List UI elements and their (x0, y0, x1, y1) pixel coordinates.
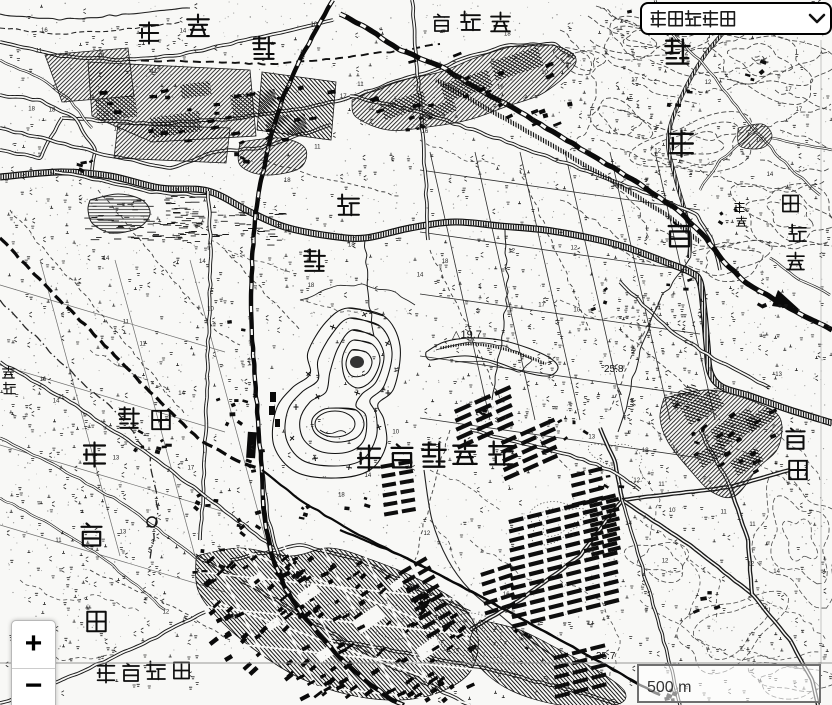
svg-text:14: 14 (435, 616, 442, 622)
svg-text:14: 14 (767, 172, 774, 178)
svg-text:11: 11 (314, 144, 321, 150)
svg-text:11: 11 (58, 394, 65, 400)
svg-text:10: 10 (573, 308, 580, 314)
svg-text:18: 18 (284, 178, 291, 184)
svg-text:18: 18 (504, 31, 511, 37)
svg-text:11: 11 (368, 106, 375, 112)
svg-text:10: 10 (541, 70, 548, 76)
svg-text:13: 13 (231, 615, 238, 621)
svg-text:10: 10 (756, 138, 763, 144)
svg-text:35.7: 35.7 (596, 651, 616, 662)
svg-text:12: 12 (748, 561, 755, 567)
svg-text:17: 17 (538, 302, 545, 308)
svg-text:10: 10 (392, 429, 399, 435)
svg-text:11: 11 (140, 341, 147, 347)
svg-text:△19.7: △19.7 (452, 329, 482, 341)
svg-text:17: 17 (393, 368, 400, 374)
svg-text:18: 18 (642, 448, 649, 454)
svg-text:12: 12 (508, 248, 515, 254)
svg-text:12: 12 (424, 531, 431, 537)
svg-text:11: 11 (355, 563, 362, 569)
svg-text:13: 13 (113, 456, 120, 462)
svg-text:10: 10 (311, 22, 318, 28)
svg-text:16: 16 (503, 592, 510, 598)
svg-text:18: 18 (28, 107, 35, 113)
svg-text:25.8: 25.8 (604, 364, 624, 375)
svg-text:18: 18 (308, 283, 315, 289)
svg-text:11: 11 (123, 319, 130, 325)
svg-text:13: 13 (775, 372, 782, 378)
svg-text:14: 14 (417, 273, 424, 279)
svg-text:13: 13 (588, 435, 595, 441)
svg-text:12: 12 (633, 478, 640, 484)
svg-text:18: 18 (442, 259, 449, 265)
svg-text:16: 16 (40, 377, 47, 383)
svg-text:12: 12 (163, 610, 170, 616)
svg-text:12: 12 (654, 148, 661, 154)
svg-text:14: 14 (625, 521, 632, 527)
svg-text:16: 16 (41, 28, 48, 34)
svg-text:14: 14 (114, 127, 121, 133)
svg-text:14: 14 (773, 569, 780, 575)
svg-text:11: 11 (55, 538, 62, 544)
svg-text:18: 18 (338, 493, 345, 499)
svg-text:13: 13 (120, 530, 127, 536)
svg-text:14: 14 (180, 28, 187, 34)
svg-text:16: 16 (422, 129, 429, 135)
svg-text:14: 14 (199, 259, 206, 265)
svg-text:12: 12 (662, 558, 669, 564)
svg-text:11: 11 (151, 69, 158, 75)
svg-text:14: 14 (178, 391, 185, 397)
svg-text:14: 14 (365, 473, 372, 479)
svg-text:17: 17 (785, 87, 792, 93)
svg-text:16: 16 (453, 75, 460, 81)
svg-text:10: 10 (207, 307, 214, 313)
svg-text:17: 17 (305, 583, 312, 589)
svg-text:14: 14 (587, 548, 594, 554)
svg-text:11: 11 (658, 482, 665, 488)
svg-text:12: 12 (705, 80, 712, 86)
svg-text:11: 11 (672, 449, 679, 455)
svg-text:18: 18 (348, 243, 355, 249)
svg-text:17: 17 (340, 94, 347, 100)
svg-text:14: 14 (471, 646, 478, 652)
svg-text:13: 13 (102, 112, 109, 118)
svg-text:11: 11 (357, 82, 364, 88)
svg-text:10: 10 (669, 508, 676, 514)
svg-text:18: 18 (49, 108, 56, 114)
svg-text:16: 16 (497, 85, 504, 91)
svg-text:17: 17 (796, 107, 803, 113)
svg-text:18: 18 (98, 54, 105, 60)
svg-text:11: 11 (36, 49, 43, 55)
svg-text:12: 12 (571, 246, 578, 252)
svg-text:14: 14 (103, 256, 110, 262)
svg-text:11: 11 (721, 509, 728, 515)
svg-text:17: 17 (172, 189, 179, 195)
svg-text:17: 17 (188, 466, 195, 472)
svg-text:11: 11 (749, 522, 756, 528)
svg-text:17: 17 (631, 77, 638, 83)
